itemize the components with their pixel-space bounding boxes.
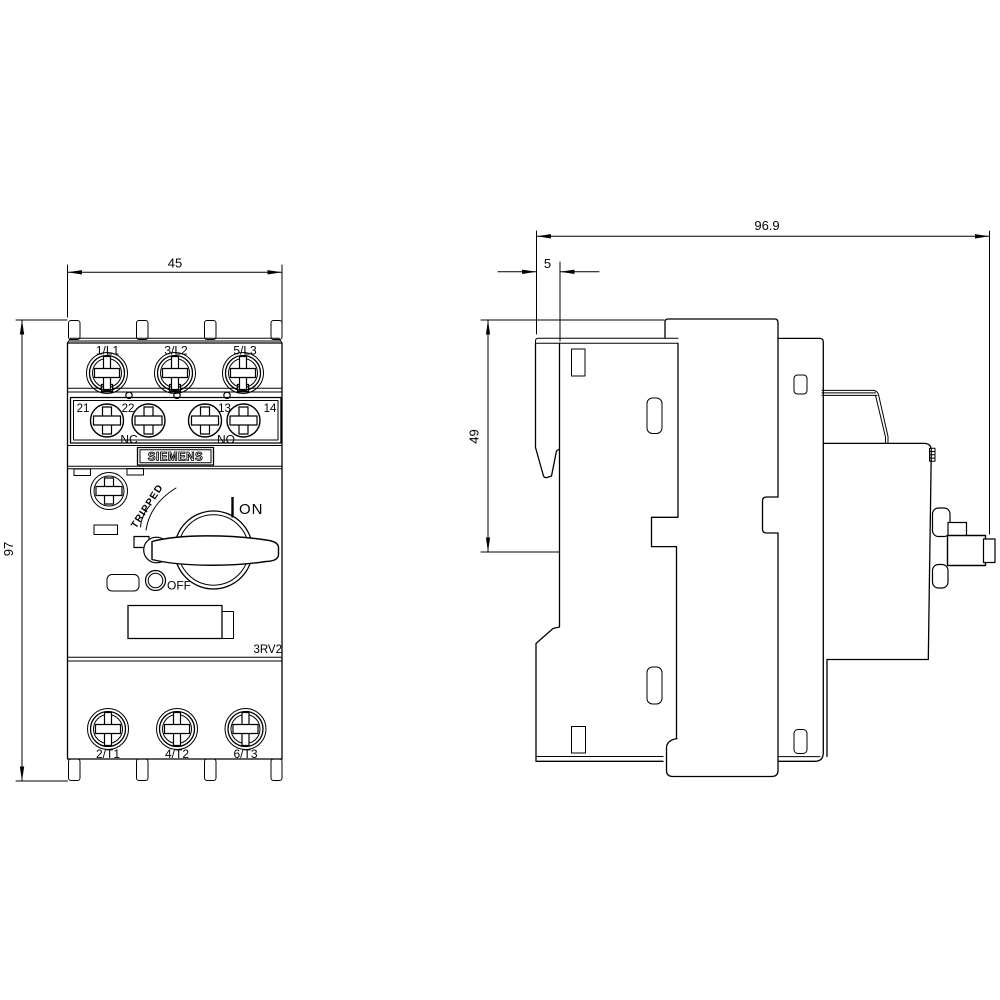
terminal-screw-icon [225, 709, 266, 750]
label-field-side [222, 612, 234, 639]
housing-front-profile [823, 443, 995, 756]
vent-slot-hole [647, 398, 662, 434]
technical-drawing-page: 1/L1 3/L2 5/L3 21 22 13 [0, 0, 1000, 1000]
aux-nc-label: NC [120, 433, 138, 447]
housing-back-profile [536, 338, 679, 761]
aux-label-14: 14 [264, 403, 277, 415]
vent-slot-hole [647, 667, 662, 704]
model-label: 3RV2 [253, 644, 282, 656]
knob-rim-upper [933, 508, 951, 537]
dimension-upper-height: 49 [467, 320, 665, 552]
dimension-height: 97 [1, 320, 68, 781]
rotary-handle [152, 536, 279, 565]
mounting-feet-bottom [69, 759, 283, 781]
off-label: OFF [167, 579, 191, 593]
vent-hole [794, 375, 807, 394]
dimensional-drawing: 1/L1 3/L2 5/L3 21 22 13 [0, 0, 1000, 1000]
on-label: ON [239, 501, 264, 518]
terminal-screw-icon [157, 709, 198, 750]
dim-height-label: 97 [1, 542, 16, 556]
on-position: ON [233, 497, 264, 518]
aux-contact-block: 21 22 13 14 NC NO [71, 398, 282, 447]
brand-plate: SIEMENS [138, 448, 214, 466]
aux-no-label: NO [217, 433, 235, 447]
mid-seam-edge [652, 343, 679, 739]
terminal-label-2T1: 2/T1 [96, 747, 120, 761]
dim-depth-label: 96.9 [754, 218, 779, 233]
tripped-indicator: TRIPPED [129, 482, 176, 530]
side-view: 96.9 5 49 [467, 218, 996, 777]
vent-hole [794, 730, 807, 754]
terminal-label-4T2: 4/T2 [165, 747, 189, 761]
test-button [107, 575, 139, 592]
rear-section-edge [778, 338, 823, 761]
knob-rim-lower [933, 565, 949, 589]
off-position: OFF [146, 571, 192, 593]
dim-clip-label: 5 [544, 256, 551, 271]
reset-screw-icon [91, 473, 128, 510]
terminal-screw-icon [87, 353, 128, 394]
front-view: 1/L1 3/L2 5/L3 21 22 13 [1, 256, 282, 782]
terminal-screw-icon [88, 709, 129, 750]
dim-width-label: 45 [168, 256, 182, 271]
aux-screw-icon [91, 404, 124, 437]
brand-logo: SIEMENS [148, 452, 203, 464]
terminal-screws-bottom [88, 709, 267, 750]
label-field [128, 606, 222, 639]
dimension-clip: 5 [498, 256, 599, 341]
aux-label-22: 22 [122, 403, 135, 415]
terminal-screw-icon [223, 353, 264, 394]
dimension-depth: 96.9 [537, 218, 990, 534]
mounting-tabs-top [69, 321, 283, 340]
marker-slot [94, 525, 118, 535]
din-rail-clip [536, 343, 560, 477]
front-section-edge [823, 443, 931, 756]
housing-center-profile [665, 319, 778, 777]
aux-label-21: 21 [77, 403, 90, 415]
knob-side-view [933, 508, 996, 588]
housing-right-profile [778, 338, 823, 761]
vent-slot [127, 469, 144, 476]
handle-side [948, 536, 986, 566]
dim-upper-height-label: 49 [467, 429, 482, 443]
vent-hole [572, 349, 586, 376]
terminal-cover-edge [536, 338, 679, 343]
terminal-screw-icon [155, 353, 196, 394]
vent-hole [572, 727, 586, 754]
dimension-width: 45 [68, 256, 283, 338]
control-panel: TRIPPED ON OFF [74, 469, 282, 657]
terminal-cover-ribs [822, 390, 888, 443]
terminal-label-6T3: 6/T3 [233, 747, 257, 761]
edge-ridge [930, 448, 936, 461]
vent-slot [74, 469, 91, 476]
handle-tip [984, 539, 996, 563]
